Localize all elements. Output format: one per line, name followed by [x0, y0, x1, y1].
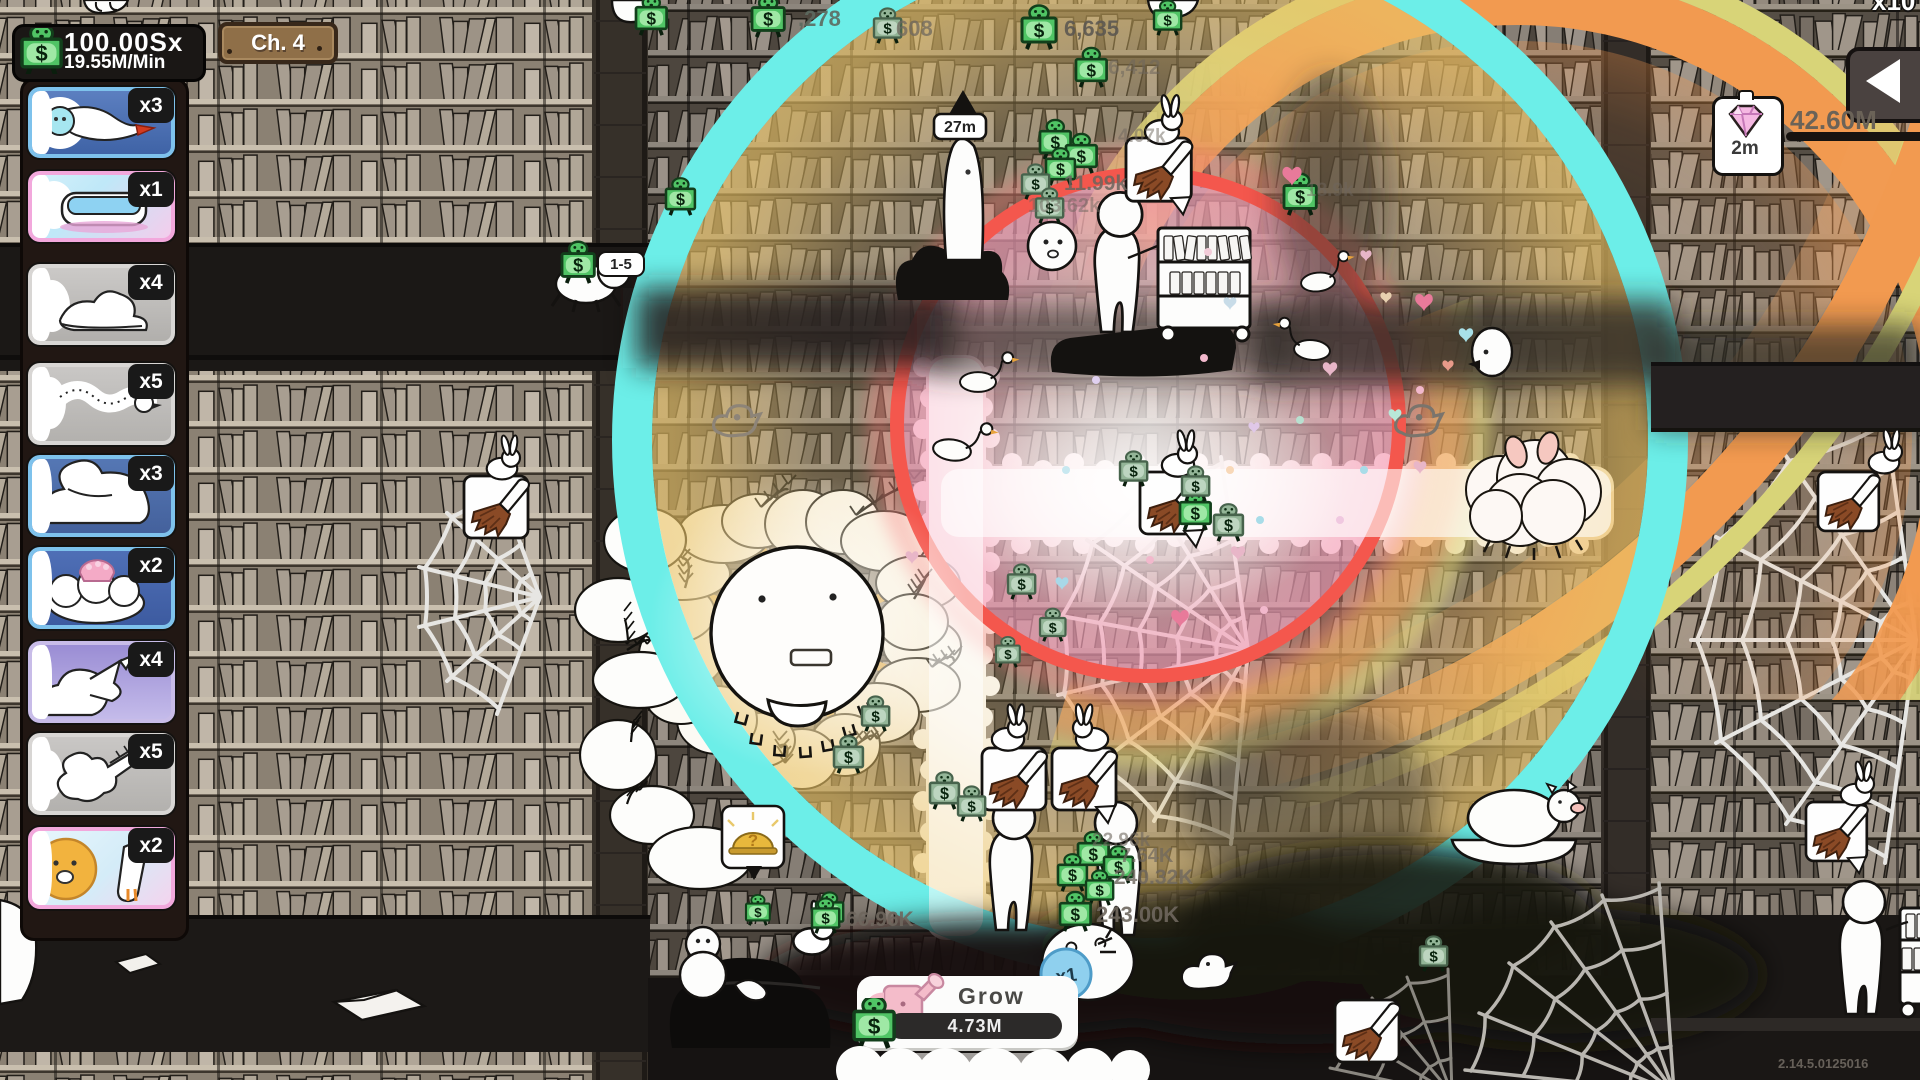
svg-text:$: $: [647, 9, 657, 28]
svg-text:66.96K: 66.96K: [846, 908, 914, 931]
svg-text:$: $: [763, 10, 773, 30]
svg-text:,278: ,278: [798, 6, 841, 31]
svg-text:4.07k: 4.07k: [1118, 126, 1166, 147]
svg-text:$: $: [1295, 188, 1305, 208]
svg-text:$: $: [1077, 147, 1087, 166]
svg-text:6,412: 6,412: [1108, 56, 1161, 79]
svg-text:?: ?: [748, 831, 758, 850]
svg-text:11.99k: 11.99k: [1064, 172, 1127, 195]
svg-text:18.9k: 18.9k: [1306, 180, 1354, 201]
svg-text:240.32K: 240.32K: [1114, 866, 1193, 889]
svg-text:$: $: [967, 799, 976, 816]
svg-text:$: $: [868, 1014, 881, 1039]
svg-text:$: $: [573, 256, 583, 276]
svg-text:$: $: [844, 749, 853, 767]
svg-text:103.62k: 103.62k: [1028, 195, 1101, 217]
svg-text:$: $: [1049, 620, 1057, 636]
svg-text:$: $: [1034, 21, 1045, 42]
svg-text:$: $: [1068, 867, 1077, 885]
svg-text:$: $: [821, 911, 830, 928]
svg-text:$: $: [1191, 504, 1201, 523]
svg-text:$: $: [1071, 905, 1081, 924]
svg-text:6,635: 6,635: [1064, 16, 1119, 41]
svg-text:22.96k: 22.96k: [1092, 830, 1151, 851]
svg-text:$: $: [754, 905, 762, 920]
svg-text:$: $: [1429, 949, 1438, 966]
svg-text:$: $: [35, 41, 47, 66]
svg-text:$: $: [1031, 177, 1040, 194]
svg-text:$: $: [1129, 464, 1138, 481]
svg-text:2.14.5.0125016: 2.14.5.0125016: [1778, 1056, 1868, 1071]
svg-text:$: $: [676, 191, 685, 209]
svg-text:$: $: [871, 709, 880, 726]
svg-text:1-5: 1-5: [610, 256, 632, 273]
svg-text:$: $: [1017, 577, 1026, 594]
svg-text:$: $: [1191, 479, 1200, 496]
svg-text:$: $: [1087, 61, 1097, 80]
svg-text:$: $: [1095, 883, 1104, 900]
svg-text:$: $: [1163, 13, 1172, 30]
svg-text:608: 608: [896, 16, 933, 41]
svg-text:$: $: [1224, 517, 1233, 535]
svg-text:27m: 27m: [944, 119, 976, 136]
svg-text:243.00K: 243.00K: [1096, 902, 1179, 927]
svg-text:$: $: [940, 785, 949, 803]
svg-text:$: $: [883, 21, 892, 38]
svg-text:$: $: [1004, 647, 1012, 662]
